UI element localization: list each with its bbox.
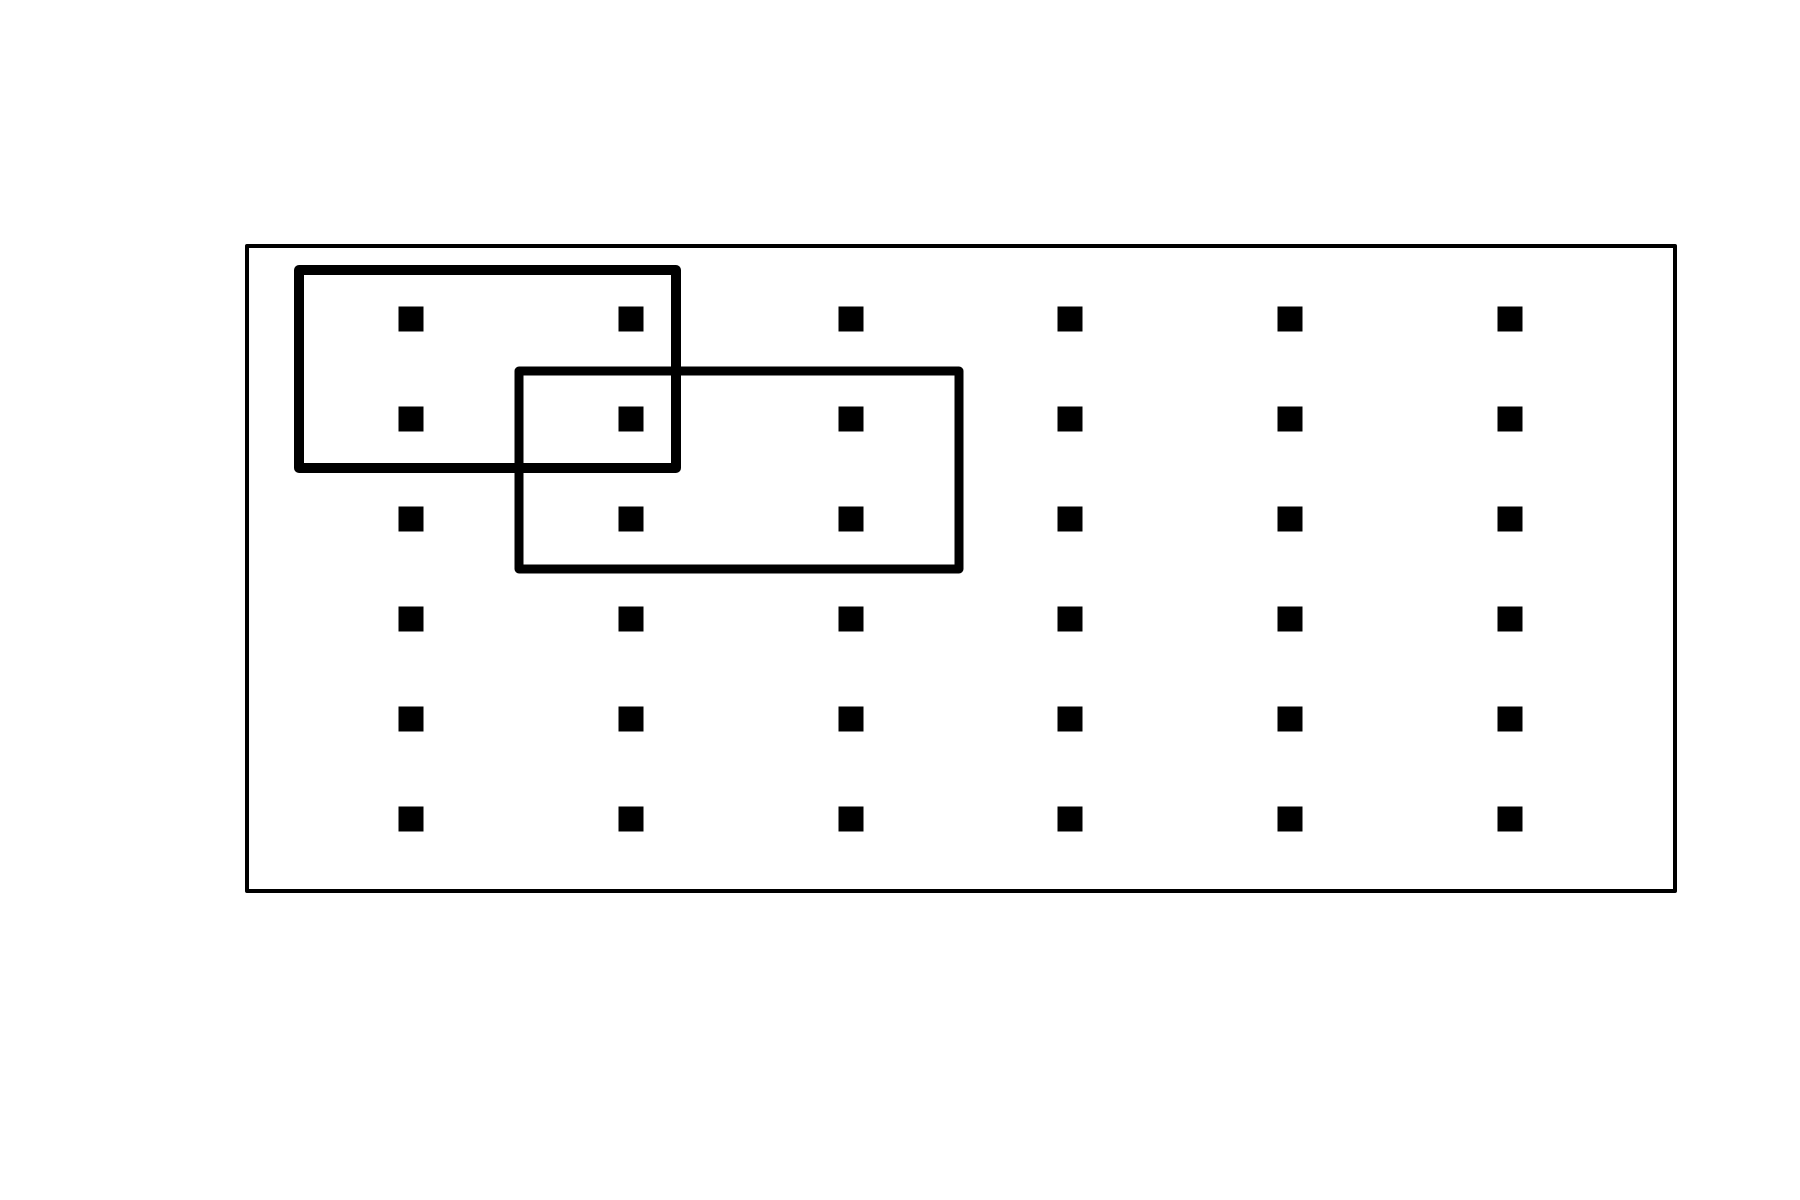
grid-dot-r6-c4	[1058, 807, 1083, 832]
grid-dot-r1-c6	[1498, 307, 1523, 332]
grid-dot-r5-c1	[399, 707, 424, 732]
dot-grid-diagram	[0, 0, 1800, 1200]
figure-page	[0, 0, 1800, 1200]
grid-dot-r2-c1	[399, 407, 424, 432]
grid-dot-r4-c2	[619, 607, 644, 632]
grid-dot-r6-c2	[619, 807, 644, 832]
grid-dot-r5-c3	[839, 707, 864, 732]
grid-dot-r6-c3	[839, 807, 864, 832]
grid-dot-r5-c2	[619, 707, 644, 732]
grid-dot-r2-c4	[1058, 407, 1083, 432]
grid-dot-r5-c5	[1278, 707, 1303, 732]
grid-dot-r4-c5	[1278, 607, 1303, 632]
grid-dot-r4-c3	[839, 607, 864, 632]
grid-dot-r5-c4	[1058, 707, 1083, 732]
grid-dot-r5-c6	[1498, 707, 1523, 732]
grid-dot-r3-c5	[1278, 507, 1303, 532]
grid-dot-r3-c6	[1498, 507, 1523, 532]
grid-dot-r1-c1	[399, 307, 424, 332]
grid-dot-r6-c6	[1498, 807, 1523, 832]
grid-dot-r2-c6	[1498, 407, 1523, 432]
grid-dot-r6-c1	[399, 807, 424, 832]
grid-dot-r2-c5	[1278, 407, 1303, 432]
grid-dot-r1-c3	[839, 307, 864, 332]
grid-dot-r4-c4	[1058, 607, 1083, 632]
grid-dot-r4-c6	[1498, 607, 1523, 632]
grid-dot-r2-c2	[619, 407, 644, 432]
grid-dot-r1-c5	[1278, 307, 1303, 332]
grid-dot-r4-c1	[399, 607, 424, 632]
grid-dot-r3-c3	[839, 507, 864, 532]
grid-dot-r6-c5	[1278, 807, 1303, 832]
grid-dot-r1-c2	[619, 307, 644, 332]
grid-dot-r3-c1	[399, 507, 424, 532]
grid-dot-r3-c2	[619, 507, 644, 532]
grid-dot-r2-c3	[839, 407, 864, 432]
grid-dot-r1-c4	[1058, 307, 1083, 332]
grid-dot-r3-c4	[1058, 507, 1083, 532]
